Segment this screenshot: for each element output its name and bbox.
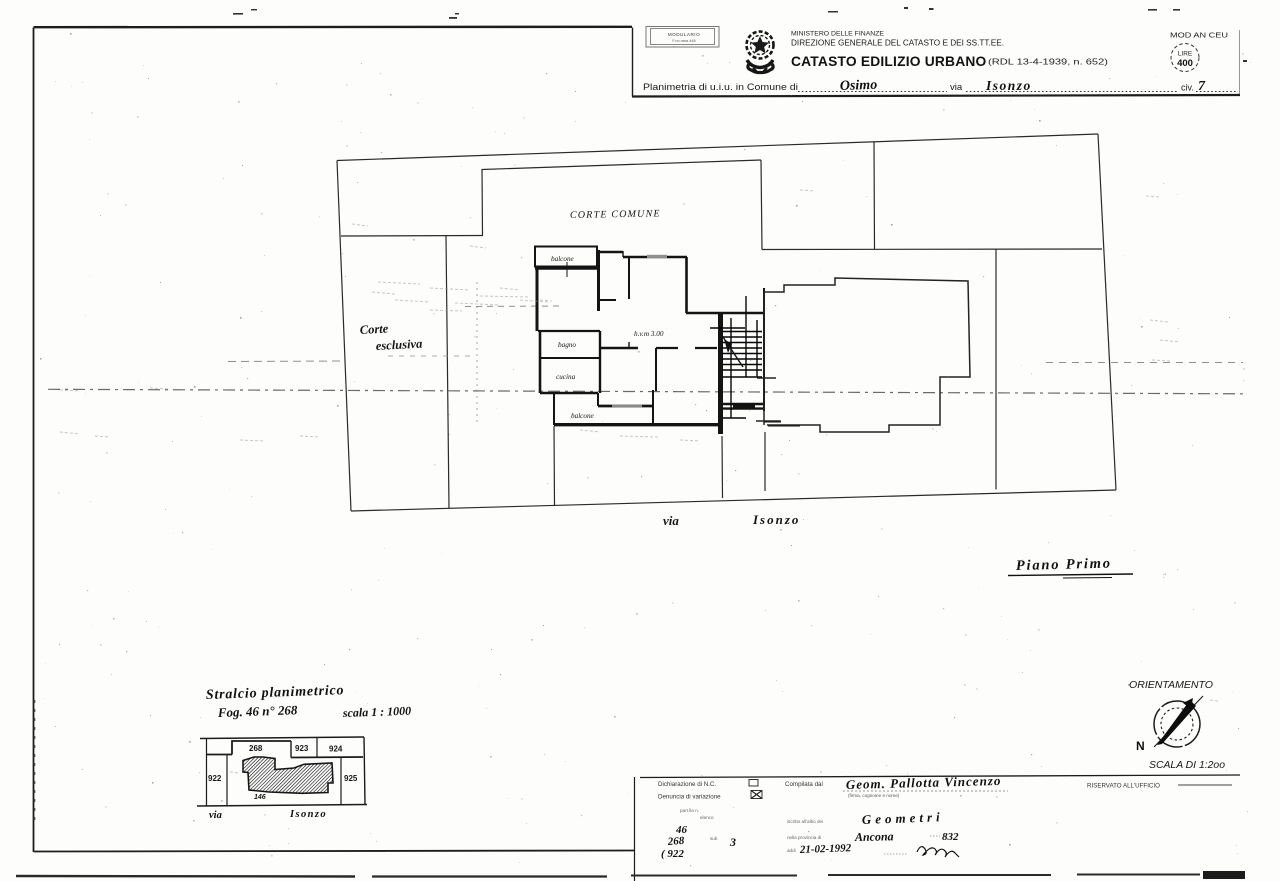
- svg-text:sub: sub: [710, 836, 718, 841]
- svg-text:nella provincia di: nella provincia di: [787, 835, 821, 840]
- svg-text:LIRE: LIRE: [1178, 51, 1192, 58]
- svg-text:elenco: elenco: [700, 815, 714, 820]
- svg-text:925: 925: [344, 774, 358, 783]
- svg-text:268: 268: [666, 835, 685, 848]
- svg-text:DIREZIONE GENERALE DEL CATASTO: DIREZIONE GENERALE DEL CATASTO E DEI SS.…: [791, 39, 1004, 48]
- svg-text:addi: addi: [787, 848, 796, 853]
- svg-text:esclusiva: esclusiva: [375, 337, 422, 353]
- svg-text:iscritto all'albo dei: iscritto all'albo dei: [787, 819, 823, 824]
- svg-text:RISERVATO ALL'UFFICIO: RISERVATO ALL'UFFICIO: [1087, 783, 1160, 790]
- svg-text:ORIENTAMENTO: ORIENTAMENTO: [1129, 679, 1213, 691]
- svg-text:(firma, cognome e nome): (firma, cognome e nome): [848, 793, 900, 798]
- svg-text:Planimetria di u.i.u. in Comun: Planimetria di u.i.u. in Comune di: [643, 82, 798, 93]
- svg-text:Osimo: Osimo: [840, 78, 878, 94]
- svg-text:924: 924: [329, 745, 343, 754]
- svg-text:MODULARIO: MODULARIO: [668, 32, 700, 37]
- svg-text:balcone: balcone: [551, 255, 575, 263]
- svg-text:Isonzo: Isonzo: [752, 512, 800, 527]
- svg-text:part.lla n.: part.lla n.: [680, 808, 699, 813]
- svg-text:via: via: [209, 810, 222, 821]
- svg-text:balcone: balcone: [571, 412, 595, 420]
- svg-text:21-02-1992: 21-02-1992: [799, 842, 852, 856]
- svg-text::': :': [1163, 574, 1166, 580]
- svg-text:Isonzo: Isonzo: [289, 809, 327, 820]
- svg-text:bagno: bagno: [558, 341, 576, 349]
- svg-text:923: 923: [295, 744, 309, 753]
- svg-text:400: 400: [1177, 58, 1193, 69]
- svg-text:MOD AN CEU: MOD AN CEU: [1170, 31, 1228, 40]
- svg-text:Dichiarazione di N.C.: Dichiarazione di N.C.: [658, 781, 716, 788]
- svg-text:MINISTERO DELLE FINANZE: MINISTERO DELLE FINANZE: [791, 31, 885, 38]
- svg-text:(RDL 13-4-1939, n. 652): (RDL 13-4-1939, n. 652): [988, 58, 1108, 67]
- svg-text:Denuncia di variazione: Denuncia di variazione: [658, 794, 721, 801]
- svg-text:SCALA DI 1:2oo: SCALA DI 1:2oo: [1149, 759, 1225, 771]
- svg-text:Fog. 46 n° 268: Fog. 46 n° 268: [217, 702, 299, 720]
- svg-text:cucina: cucina: [556, 373, 576, 381]
- svg-text:via: via: [950, 82, 963, 93]
- svg-text:Stralcio planimetrico: Stralcio planimetrico: [206, 683, 345, 703]
- svg-text:CORTE COMUNE: CORTE COMUNE: [570, 208, 661, 221]
- svg-text:CATASTO EDILIZIO URBANO: CATASTO EDILIZIO URBANO: [791, 54, 987, 69]
- svg-text:Geom. Pallotta Vincenzo: Geom. Pallotta Vincenzo: [846, 773, 1002, 792]
- svg-text:3: 3: [729, 835, 736, 849]
- svg-text:Isonzo: Isonzo: [985, 78, 1032, 93]
- svg-text:146: 146: [254, 794, 266, 801]
- svg-text:N: N: [1136, 739, 1145, 753]
- svg-text:h.v.m 3.00: h.v.m 3.00: [634, 330, 664, 338]
- svg-text:scala 1 : 1000: scala 1 : 1000: [342, 704, 412, 720]
- svg-text:922: 922: [208, 774, 222, 783]
- svg-text:Ancona: Ancona: [854, 829, 894, 844]
- svg-text:via: via: [663, 513, 679, 528]
- svg-text:Geometri: Geometri: [862, 809, 944, 827]
- svg-text:832: 832: [942, 831, 959, 843]
- svg-text:civ.: civ.: [1181, 83, 1194, 93]
- svg-text:7: 7: [1198, 79, 1206, 94]
- svg-text:Piano Primo: Piano Primo: [1016, 555, 1112, 574]
- svg-text:268: 268: [249, 744, 263, 753]
- svg-text:F.no rana 448: F.no rana 448: [672, 39, 695, 43]
- svg-text:( 922: ( 922: [661, 848, 684, 860]
- svg-text:Compilata dal: Compilata dal: [785, 781, 823, 788]
- svg-text:Corte: Corte: [359, 322, 389, 337]
